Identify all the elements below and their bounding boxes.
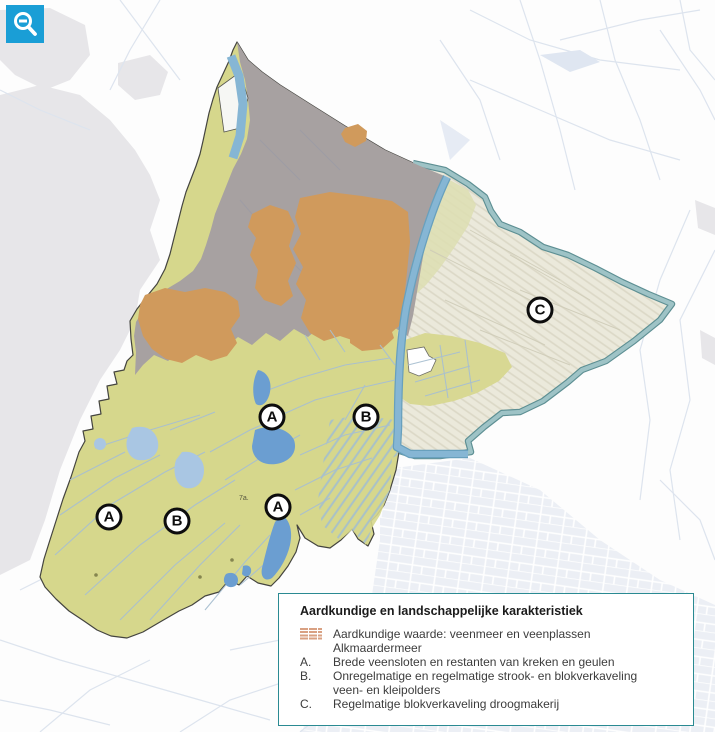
legend-item-a: A. Brede veensloten en restanten van kre…: [300, 655, 681, 669]
legend-title: Aardkundige en landschappelijke karakter…: [300, 604, 681, 618]
legend-item-text: Aardkundige waarde: veenmeer en veenplas…: [333, 627, 681, 641]
map-label-7a: 7a.: [239, 495, 249, 502]
marker-a: A: [259, 404, 286, 431]
legend-key: A.: [300, 655, 333, 669]
legend-item-c: C. Regelmatige blokverkaveling droogmake…: [300, 697, 681, 711]
zoom-out-icon: [11, 10, 39, 38]
legend-item-text: Regelmatige blokverkaveling droogmakerij: [333, 697, 681, 711]
legend-item-text: Brede veensloten en restanten van kreken…: [333, 655, 681, 669]
marker-b: B: [353, 404, 380, 431]
legend-item-text: Alkmaardermeer: [333, 641, 681, 655]
legend-item-text: veen- en kleipolders: [333, 683, 681, 697]
legend-key: C.: [300, 697, 333, 711]
legend-list: Aardkundige waarde: veenmeer en veenplas…: [300, 627, 681, 711]
legend-panel: Aardkundige en landschappelijke karakter…: [278, 593, 694, 726]
legend-item-b: B. Onregelmatige en regelmatige strook- …: [300, 669, 681, 697]
legend-key: B.: [300, 669, 333, 697]
map-viewport[interactable]: 7a. A B C A B A Aardkundige en landschap…: [0, 0, 715, 732]
marker-b: B: [164, 508, 191, 535]
marker-a: A: [265, 494, 292, 521]
legend-item-aardkundige-waarde: Aardkundige waarde: veenmeer en veenplas…: [300, 627, 681, 655]
aardkundige-waarde-swatch: [300, 628, 322, 640]
marker-c: C: [527, 297, 554, 324]
marker-a: A: [96, 504, 123, 531]
legend-item-text: Onregelmatige en regelmatige strook- en …: [333, 669, 681, 683]
zoom-out-button[interactable]: [6, 5, 44, 43]
